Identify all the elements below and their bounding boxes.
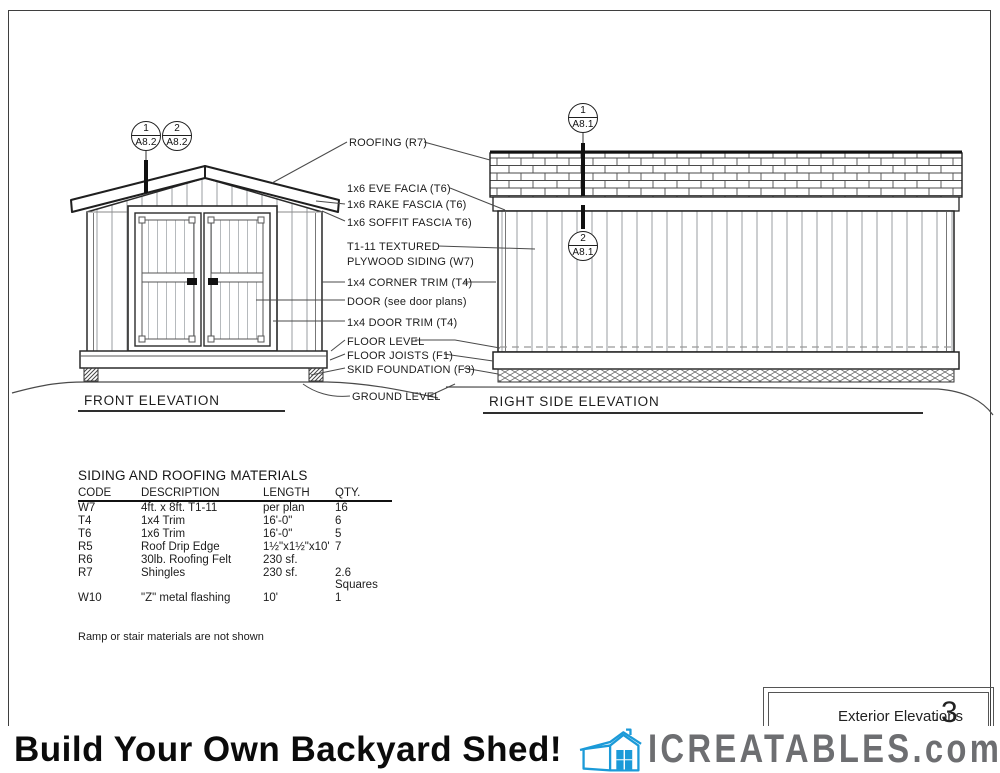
callout-skid-foundation: SKID FOUNDATION (F3) [347, 364, 475, 376]
brand-name: ICREATABLES [648, 727, 912, 771]
cell-code: R5 [78, 541, 141, 554]
marker-number: 2 [569, 232, 597, 246]
cell-description: "Z" metal flashing [141, 592, 263, 605]
front-elevation-underline [78, 410, 285, 412]
promo-banner: Build Your Own Backyard Shed! ICREATABLE… [0, 726, 1000, 773]
callout-siding-line1: T1-11 TEXTURED [347, 241, 440, 253]
table-row: T4 1x4 Trim 16'-0" 6 [78, 515, 392, 528]
section-marker: 1 A8.2 [131, 121, 161, 151]
cell-code: W7 [78, 502, 141, 515]
cell-qty: 1 [335, 592, 392, 605]
cell-description: 1x4 Trim [141, 515, 263, 528]
shed-logo-icon [574, 727, 648, 773]
header-code: CODE [78, 487, 141, 499]
materials-table: SIDING AND ROOFING MATERIALS CODE DESCRI… [78, 468, 392, 643]
section-marker: 2 A8.1 [568, 231, 598, 261]
marker-sheet: A8.2 [135, 136, 156, 149]
cell-code: R7 [78, 567, 141, 593]
callout-siding-line2: PLYWOOD SIDING (W7) [347, 256, 474, 268]
materials-table-title: SIDING AND ROOFING MATERIALS [78, 468, 392, 483]
marker-number: 2 [163, 122, 191, 136]
front-elevation-title: FRONT ELEVATION [84, 393, 220, 408]
table-row: R6 30lb. Roofing Felt 230 sf. [78, 554, 392, 567]
marker-number: 1 [569, 104, 597, 118]
callout-rake-fascia: 1x6 RAKE FASCIA (T6) [347, 199, 467, 211]
cell-code: R6 [78, 554, 141, 567]
right-elevation-drawing [490, 133, 962, 382]
cell-qty: 5 [335, 528, 392, 541]
section-marker: 1 A8.1 [568, 103, 598, 133]
sheet-page: 1 A8.2 2 A8.2 1 A8.1 2 A8.1 ROOFING (R7)… [0, 0, 1000, 773]
cell-qty [335, 554, 392, 567]
cell-description: Roof Drip Edge [141, 541, 263, 554]
right-elevation-title: RIGHT SIDE ELEVATION [489, 394, 660, 409]
marker-sheet: A8.1 [572, 246, 593, 259]
cell-code: T4 [78, 515, 141, 528]
table-row: W7 4ft. x 8ft. T1-11 per plan 16 [78, 502, 392, 515]
materials-note: Ramp or stair materials are not shown [78, 631, 392, 643]
cell-description: 1x6 Trim [141, 528, 263, 541]
cell-code: T6 [78, 528, 141, 541]
callout-eve-facia: 1x6 EVE FACIA (T6) [347, 183, 451, 195]
cell-description: 30lb. Roofing Felt [141, 554, 263, 567]
table-row: R7 Shingles 230 sf. 2.6 Squares [78, 567, 392, 593]
table-row: R5 Roof Drip Edge 1½"x1½"x10' 7 [78, 541, 392, 554]
cell-qty: 2.6 Squares [335, 567, 392, 593]
cell-qty: 7 [335, 541, 392, 554]
callout-ground-level: GROUND LEVEL [352, 391, 441, 403]
banner-headline: Build Your Own Backyard Shed! [14, 730, 562, 770]
cell-qty: 6 [335, 515, 392, 528]
cell-qty: 16 [335, 502, 392, 515]
cell-code: W10 [78, 592, 141, 605]
cell-description: 4ft. x 8ft. T1-11 [141, 502, 263, 515]
marker-number: 1 [132, 122, 160, 136]
cell-length: 10' [263, 592, 335, 605]
brand-wordmark: ICREATABLES.com [648, 726, 1000, 773]
callout-door: DOOR (see door plans) [347, 296, 467, 308]
front-elevation-drawing [71, 151, 339, 381]
brand-suffix: .com [912, 727, 1000, 771]
callout-floor-joists: FLOOR JOISTS (F1) [347, 350, 453, 362]
cell-description: Shingles [141, 567, 263, 593]
cell-length: 16'-0" [263, 515, 335, 528]
elevations-line-art [0, 0, 1000, 773]
header-qty: QTY. [335, 487, 392, 499]
table-row: W10 "Z" metal flashing 10' 1 [78, 592, 392, 605]
cell-length: 230 sf. [263, 554, 335, 567]
callout-door-trim: 1x4 DOOR TRIM (T4) [347, 317, 457, 329]
table-row: T6 1x6 Trim 16'-0" 5 [78, 528, 392, 541]
sheet-title-separator: . [934, 708, 938, 725]
cell-length: 1½"x1½"x10' [263, 541, 335, 554]
header-length: LENGTH [263, 487, 335, 499]
marker-sheet: A8.2 [166, 136, 187, 149]
callout-soffit-fascia: 1x6 SOFFIT FASCIA T6) [347, 217, 472, 229]
cell-length: 230 sf. [263, 567, 335, 593]
cell-length: per plan [263, 502, 335, 515]
header-description: DESCRIPTION [141, 487, 263, 499]
section-marker: 2 A8.2 [162, 121, 192, 151]
sheet-number: 3 [941, 696, 958, 730]
marker-sheet: A8.1 [572, 118, 593, 131]
cell-length: 16'-0" [263, 528, 335, 541]
right-elevation-underline [483, 412, 923, 414]
materials-table-header: CODE DESCRIPTION LENGTH QTY. [78, 487, 392, 502]
callout-roofing: ROOFING (R7) [349, 137, 427, 149]
callout-corner-trim: 1x4 CORNER TRIM (T4) [347, 277, 472, 289]
callout-floor-level: FLOOR LEVEL [347, 336, 424, 348]
